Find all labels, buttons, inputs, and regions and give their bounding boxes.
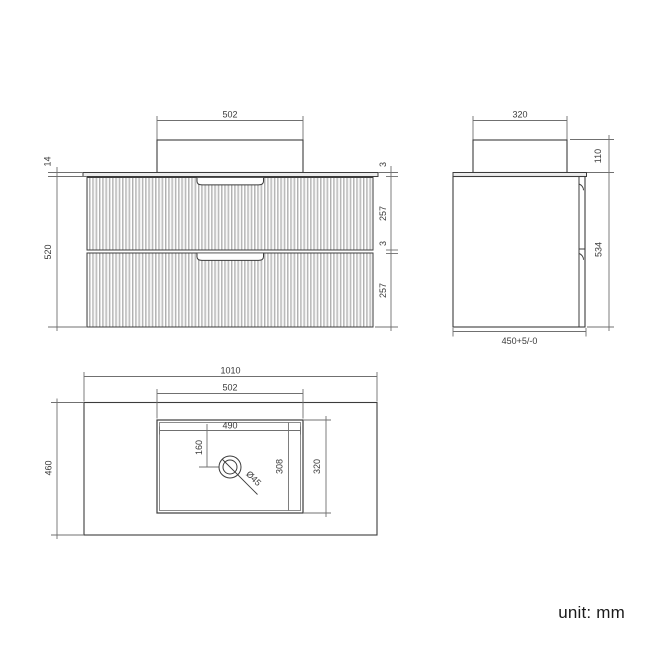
dim-side-basin-depth <box>473 116 567 140</box>
dim-label-bowl-depth: 308 <box>275 459 285 474</box>
front-drawer-2 <box>87 253 373 327</box>
side-basin <box>473 140 567 173</box>
plan-view: 1010 502 460 490 <box>44 366 378 540</box>
side-view: 320 110 534 450+5/-0 <box>453 110 614 347</box>
dim-label-front-basin-width: 502 <box>222 110 237 120</box>
front-countertop <box>83 173 378 177</box>
dim-front-left-heights <box>48 167 87 331</box>
dim-label-top-gap: 3 <box>378 162 388 167</box>
dim-label-drawer2-height: 257 <box>378 283 388 298</box>
front-drawer2-handle-recess <box>197 253 264 260</box>
front-drawer-1 <box>87 178 373 251</box>
drawing-svg: 502 14 520 3 257 3 257 <box>0 0 650 650</box>
dim-label-cabinet-depth: 450+5/-0 <box>502 336 538 346</box>
dim-label-middle-gap: 3 <box>378 241 388 246</box>
dim-label-plan-sink-width: 502 <box>222 383 237 393</box>
dim-label-plan-sink-depth: 320 <box>312 459 322 474</box>
dim-label-drawer1-height: 257 <box>378 206 388 221</box>
dim-front-right-chain <box>375 166 398 331</box>
front-drawer1-handle-recess <box>197 178 264 185</box>
front-view: 502 14 520 3 257 3 257 <box>43 110 399 332</box>
vanity-dimension-drawing: 502 14 520 3 257 3 257 <box>0 0 650 650</box>
dim-label-drain-offset: 160 <box>194 440 204 455</box>
dim-label-countertop-thickness: 14 <box>43 156 53 166</box>
dim-plan-countertop-depth <box>51 399 84 540</box>
side-countertop <box>453 173 587 177</box>
dim-label-basin-height: 110 <box>593 149 603 163</box>
unit-note: unit: mm <box>558 603 625 623</box>
side-cabinet <box>453 177 585 328</box>
dim-label-plan-countertop-depth: 460 <box>44 460 54 475</box>
dim-label-bowl-width: 490 <box>222 421 237 431</box>
dim-front-basin-width <box>157 116 303 140</box>
front-basin <box>157 140 303 173</box>
dim-label-total-height: 534 <box>594 242 604 257</box>
dim-label-side-basin-depth: 320 <box>512 110 527 120</box>
dim-label-cabinet-height: 520 <box>43 244 53 259</box>
dim-label-plan-countertop-width: 1010 <box>220 366 240 376</box>
